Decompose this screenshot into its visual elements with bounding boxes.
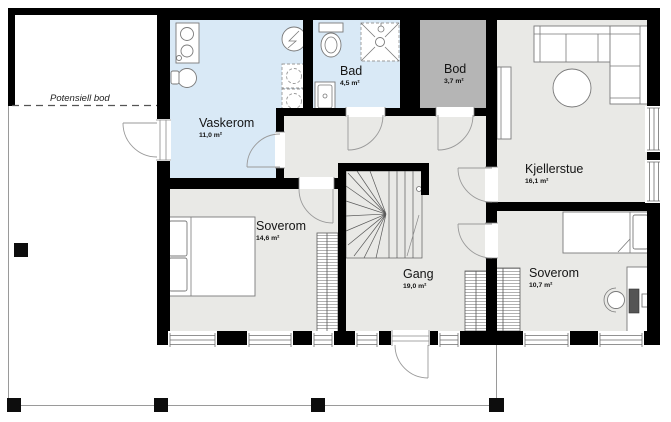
room-area-vaskerom: 11,0 m²	[199, 132, 223, 139]
room-label-soverom-2: Soverom	[529, 266, 579, 280]
toilet	[319, 23, 343, 57]
round-table	[553, 69, 591, 107]
room-label-bod: Bod	[444, 62, 466, 76]
window	[645, 106, 662, 152]
room-label-potensiell-bod: Potensiell bod	[50, 93, 110, 104]
room-area-kjellerstue: 16,1 m²	[525, 178, 549, 185]
room-area-soverom-2: 10,7 m²	[529, 282, 553, 289]
room-area-gang: 19,0 m²	[403, 283, 427, 290]
laundry-counter	[176, 23, 199, 63]
room-label-soverom-1: Soverom	[256, 219, 306, 233]
room-label-kjellerstue: Kjellerstue	[525, 162, 583, 176]
room-area-soverom-1: 14,6 m²	[256, 235, 280, 242]
window	[598, 331, 644, 349]
window	[312, 331, 334, 349]
window	[247, 331, 293, 349]
room-label-gang: Gang	[403, 267, 434, 281]
window	[438, 331, 460, 349]
wardrobe-gang	[465, 271, 487, 331]
tv-bench	[497, 67, 511, 139]
floor-plan: Potensiell bod Vaskerom 11,0 m² Bad 4,5 …	[0, 0, 671, 422]
wardrobe-soverom-1	[317, 233, 338, 332]
window	[355, 331, 379, 349]
water-heater-icon	[282, 27, 306, 51]
window	[168, 331, 217, 349]
bathroom-sink	[315, 82, 335, 111]
shower	[361, 23, 399, 61]
double-bed	[165, 217, 255, 296]
window	[645, 160, 662, 203]
wardrobe-soverom-2	[494, 268, 520, 331]
window	[523, 331, 570, 349]
room-label-bad: Bad	[340, 64, 362, 78]
exterior-door-left	[123, 119, 171, 161]
room-area-bad: 4,5 m²	[340, 80, 360, 87]
room-label-vaskerom: Vaskerom	[199, 116, 254, 130]
room-area-bod: 3,7 m²	[444, 78, 464, 85]
exterior-door-bottom	[391, 330, 430, 378]
single-bed	[563, 212, 651, 253]
